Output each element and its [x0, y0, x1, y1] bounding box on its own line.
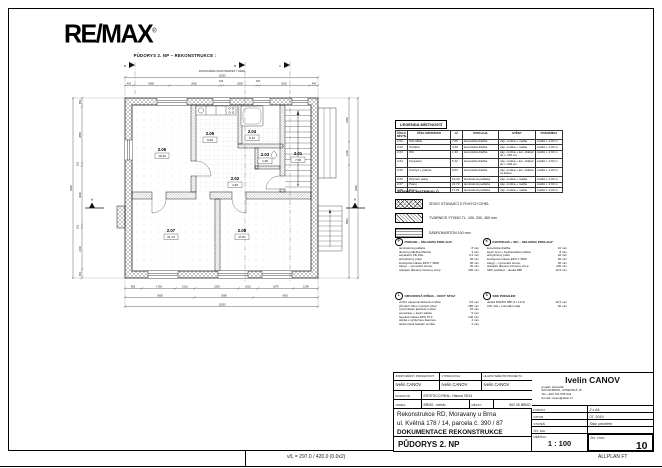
room-legend-row: 2.04 Koupelna 5,12 keramická dlažba váp.…	[396, 159, 563, 168]
registered-mark: ®	[152, 28, 155, 34]
cell-area: 5,12	[451, 159, 463, 168]
footer-divider	[245, 450, 246, 466]
note-block-floor: PPOKOJE – SKLADBA PODLAHY: laminátová po…	[395, 238, 479, 273]
order-value	[588, 427, 653, 434]
svg-text:17,81: 17,81	[238, 235, 246, 239]
cell-room-no: 2.04	[396, 159, 408, 168]
svg-text:2.06: 2.06	[158, 147, 167, 152]
responsible-name: Ivelin CANOV	[394, 381, 440, 391]
room-legend: LEGENDA MÍSTNOSTÍ ČÍSLO MÍSTN. ÚČEL MÍST…	[395, 112, 562, 193]
svg-text:150: 150	[76, 224, 80, 229]
exterior-stair	[318, 206, 342, 251]
order-label: ČÍS. ZAK.	[532, 427, 588, 434]
svg-text:2620: 2620	[281, 82, 287, 86]
sheet-number-cell: ČÍS. VÝKR. 10	[588, 434, 653, 451]
svg-text:10150: 10150	[218, 74, 226, 78]
svg-text:5810: 5810	[345, 218, 349, 224]
format-value: 2 x A4	[588, 406, 653, 413]
city-label: MĚSTO	[470, 400, 494, 409]
svg-text:3420: 3420	[282, 294, 288, 298]
cell-area: 6,03	[451, 168, 463, 177]
svg-text:4,49: 4,49	[232, 183, 238, 187]
svg-text:1200: 1200	[345, 150, 349, 156]
note-key-badge: L	[395, 292, 403, 300]
section-letter-left: A	[91, 198, 93, 202]
date-value: 07. 2019	[588, 413, 653, 420]
note-key-badge: K	[483, 238, 491, 246]
room-legend-header: ČÍSLO MÍSTN. ÚČEL MÍSTNOSTI m² PODLAHA S…	[396, 131, 563, 140]
drawing-name: PŮDORYS 2. NP	[394, 437, 532, 451]
note-block-ceiling: SSDK PODHLED: deska RIGIPS RBI (1× 12,5)…	[483, 292, 567, 308]
project-line-1: Rekonstrukce RD, Moravany u Brna	[397, 411, 528, 420]
material-item: ZDIVO STÁVAJÍCÍ Z PLNÝCH CIHEL	[395, 199, 565, 209]
stage-value: Stav. povolení	[588, 420, 653, 427]
svg-text:150: 150	[76, 161, 80, 166]
project-line-3: DOKUMENTACE REKONSTRUKCE	[397, 429, 528, 436]
room-legend-row: 2.05 Kuchyň + jídelna 6,03 keramická dla…	[396, 168, 563, 177]
format-label: FORMÁT	[532, 406, 588, 413]
note-title: OBVODOVÁ STĚNA – NOVÝ STAV:	[405, 294, 456, 298]
note-block-wall: LOBVODOVÁ STĚNA – NOVÝ STAV: vnitřní váp…	[395, 292, 479, 327]
footer-plot-info: v/L = 297.0 / 420.0 (0.0x2)	[287, 454, 345, 460]
cell-room-use: WC	[408, 150, 451, 159]
col-walls: STĚNY	[499, 131, 536, 140]
svg-text:1800: 1800	[237, 82, 243, 86]
cut-flag-letter: C	[279, 64, 281, 68]
project-line-2: ul. Květná 178 / 14, parcela č. 390 / 87	[397, 420, 528, 429]
svg-text:2140: 2140	[78, 246, 82, 252]
note-item: stávající dřevěný trámový strop220 mm	[395, 269, 479, 273]
scale-value: 1 : 100	[534, 439, 586, 448]
col-room-no: ČÍSLO MÍSTN.	[396, 131, 408, 140]
svg-text:2.03: 2.03	[261, 152, 270, 157]
svg-text:19,43: 19,43	[158, 154, 166, 158]
col-floor: PODLAHA	[463, 131, 499, 140]
col-note: POZNÁMKA	[536, 131, 563, 140]
wc-bowl	[272, 152, 277, 159]
svg-text:6,03: 6,03	[207, 138, 213, 142]
scale-cell: MĚŘÍTKO 1 : 100	[532, 434, 588, 451]
cut-flag-letter: B	[234, 64, 236, 68]
drafted-name: Ivelin CANOV	[440, 381, 482, 391]
svg-text:2.02: 2.02	[231, 176, 240, 181]
svg-text:150: 150	[256, 79, 261, 83]
svg-text:890: 890	[131, 285, 136, 289]
note-title: SDK PODHLED:	[493, 294, 517, 298]
cell-note: světlá v. 2,60 m	[536, 150, 563, 159]
svg-text:9260: 9260	[354, 185, 358, 191]
district-value: BRNO - město	[422, 400, 470, 409]
note-title: POKOJE – SKLADBA PODLAHY:	[405, 240, 453, 244]
cell-walls: váp. omítka + ker. obklad za linkou	[499, 168, 536, 177]
note-title: KOUPELNA + WC – SKLADBA PODLAHY:	[493, 240, 554, 244]
cell-room-no: 2.05	[396, 168, 408, 177]
drawing-sheet: v/L = 297.0 / 420.0 (0.0x2) ALLPLAN FT R…	[0, 0, 662, 468]
cut-plane-note: ROVINA ŘEZU NAD PARAPETY OKEN	[199, 68, 245, 73]
room-legend-table: ČÍSLO MÍSTN. ÚČEL MÍSTNOSTI m² PODLAHA S…	[395, 130, 563, 193]
chief-label: HLAVNÍ INŽENÝR PROJEKTU	[482, 373, 532, 381]
cell-room-no: 2.03	[396, 150, 408, 159]
room-legend-title: LEGENDA MÍSTNOSTÍ	[395, 120, 447, 129]
date-label: DATUM	[532, 413, 588, 420]
col-room-use: ÚČEL MÍSTNOSTI	[408, 131, 451, 140]
svg-text:1760: 1760	[156, 285, 162, 289]
cell-walls: váp. omítka + ker. obklad do v. 150 cm	[499, 150, 536, 159]
svg-text:21,73: 21,73	[167, 235, 175, 239]
stage-label: STUPEŇ	[532, 420, 588, 427]
cell-walls: váp. omítka + ker. obklad do v. 200 cm	[499, 159, 536, 168]
section-letter-right: A	[354, 198, 356, 202]
district-label: OKRES	[394, 400, 422, 409]
svg-text:1,30: 1,30	[262, 159, 268, 163]
title-block: ZODPOVĚDNÝ PROJEKTANT VYPRACOVAL HLAVNÍ …	[393, 372, 654, 452]
cell-floor: keramická dlažba	[463, 150, 499, 159]
svg-text:2.08: 2.08	[238, 228, 247, 233]
svg-text:2.07: 2.07	[167, 228, 176, 233]
material-legend: LEGENDA MATERIÁLŮ ZDIVO STÁVAJÍCÍ Z PLNÝ…	[395, 189, 565, 238]
material-legend-title: LEGENDA MATERIÁLŮ	[395, 189, 565, 194]
svg-text:9260: 9260	[69, 185, 73, 191]
svg-text:450: 450	[127, 82, 132, 86]
firm-box: Ivelin CANOV projekt. kancelář 602 00 BR…	[532, 373, 653, 406]
svg-text:1290: 1290	[303, 285, 309, 289]
svg-text:3650: 3650	[157, 294, 163, 298]
svg-text:3080: 3080	[221, 294, 227, 298]
svg-text:450: 450	[78, 99, 82, 104]
svg-text:7,06: 7,06	[295, 158, 301, 162]
note-item: SDK podhled – deska RBI12,5 mm	[483, 269, 567, 273]
investor-value: ESTETICO REAL, Hálova 78/14	[422, 391, 532, 400]
cell-room-use: Koupelna	[408, 159, 451, 168]
svg-text:2320: 2320	[214, 285, 220, 289]
balcony	[318, 108, 336, 178]
note-key-badge: P	[395, 238, 403, 246]
material-item: SÁDROKARTON 100 mm	[395, 228, 565, 238]
material-item: TVÁRNICE YTONG TL. 100, 200, 450 mm	[395, 213, 565, 223]
svg-text:450: 450	[78, 271, 82, 276]
cell-area: 1,30	[451, 150, 463, 159]
svg-text:3030: 3030	[78, 192, 82, 198]
svg-text:1870: 1870	[273, 285, 279, 289]
svg-text:450: 450	[312, 82, 317, 86]
note-item: CW rošt + minerální vata60 mm	[483, 305, 567, 309]
note-key-badge: S	[483, 292, 491, 300]
bathtub	[241, 106, 263, 126]
remax-logo-text: RE/MAX	[64, 19, 152, 48]
svg-text:150: 150	[219, 79, 224, 83]
svg-text:2250: 2250	[345, 117, 349, 123]
remax-logo: RE/MAX®	[64, 19, 155, 49]
sheet-bottom-rule	[0, 466, 662, 467]
sheet-number-value: 10	[591, 440, 651, 452]
firm-line: E-mail: canov@atlas.cz	[542, 397, 652, 401]
city-value: 602 00 BRNO	[494, 400, 532, 409]
svg-text:10150: 10150	[218, 303, 226, 307]
project-title: Rekonstrukce RD, Moravany u Brna ul. Kvě…	[394, 409, 532, 437]
svg-text:5,12: 5,12	[249, 136, 255, 140]
hatch-swatch-ytong	[395, 213, 423, 223]
svg-text:1010: 1010	[245, 285, 251, 289]
svg-text:2650: 2650	[191, 82, 197, 86]
cell-room-use: Kuchyň + jídelna	[408, 168, 451, 177]
svg-text:2890: 2890	[78, 132, 82, 138]
staircase	[285, 110, 311, 187]
svg-text:2.04: 2.04	[248, 129, 257, 134]
floor-plan: A A B B C ROVINA ŘEZU NA	[52, 56, 400, 352]
svg-text:2.01: 2.01	[294, 151, 303, 156]
cell-note: světlá v. 2,60 m	[536, 168, 563, 177]
note-item: tenkovrstvá fasádní omítka2 mm	[395, 323, 479, 327]
kitchen-counter	[196, 106, 236, 115]
chief-name: Ivelin CANOV	[482, 381, 532, 391]
footer-cad-name: ALLPLAN FT	[598, 454, 627, 460]
svg-text:1010: 1010	[182, 285, 188, 289]
cut-flag-letter: B	[124, 64, 126, 68]
responsible-label: ZODPOVĚDNÝ PROJEKTANT	[394, 373, 440, 381]
hatch-swatch-plasterboard	[395, 228, 423, 238]
svg-text:1880: 1880	[148, 82, 154, 86]
note-block-bathroom: KKOUPELNA + WC – SKLADBA PODLAHY: kerami…	[483, 238, 567, 273]
cell-floor: keramická dlažba	[463, 159, 499, 168]
firm-name: Ivelin CANOV	[534, 375, 652, 385]
col-area: m²	[451, 131, 463, 140]
investor-label: INVESTOR	[394, 391, 422, 400]
drafted-label: VYPRACOVAL	[440, 373, 482, 381]
hatch-swatch-existing-brick	[395, 199, 423, 209]
room-legend-row: 2.03 WC 1,30 keramická dlažba váp. omítk…	[396, 150, 563, 159]
cell-floor: keramická dlažba	[463, 168, 499, 177]
svg-text:2.05: 2.05	[206, 131, 215, 136]
cell-note: světlá v. 2,60 m	[536, 159, 563, 168]
